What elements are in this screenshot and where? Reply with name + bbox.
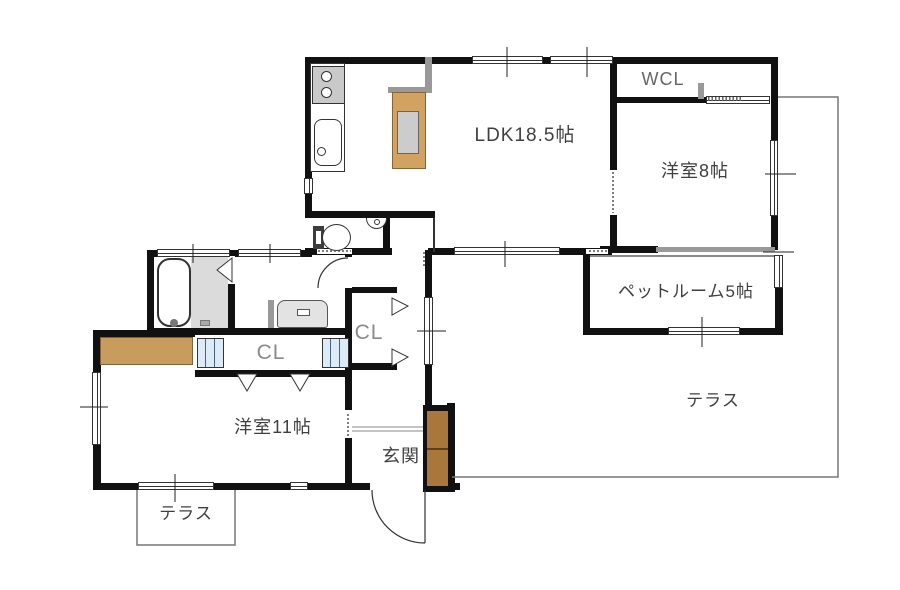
closet-door-panel-line xyxy=(214,339,215,367)
stove-burner xyxy=(321,87,332,98)
sliding-window xyxy=(454,247,560,255)
room-label-closet-hall: CL xyxy=(346,321,392,344)
kitchen-sink xyxy=(314,119,342,166)
wall-thin xyxy=(590,255,775,257)
room-label-wcl: WCL xyxy=(638,70,688,90)
wall xyxy=(583,253,590,335)
closet-counter xyxy=(100,337,193,365)
wall xyxy=(93,330,195,337)
window xyxy=(304,178,313,194)
window xyxy=(290,482,308,490)
wall-thin xyxy=(433,218,435,252)
toilet-bowl xyxy=(322,224,351,251)
wall xyxy=(610,57,617,170)
window xyxy=(770,140,778,216)
door-swing-arc xyxy=(372,490,425,543)
wcl-opening xyxy=(706,96,770,104)
room-label-west-room-11: 洋室11帖 xyxy=(220,418,326,438)
window xyxy=(138,482,214,490)
wall xyxy=(345,287,397,293)
room-label-ldk: LDK18.5帖 xyxy=(450,126,600,147)
stove-burner xyxy=(321,71,332,82)
window xyxy=(550,56,613,64)
closet-door-panel-line xyxy=(339,339,340,367)
vanity-sink xyxy=(297,309,310,316)
room-label-pet-room: ペットルーム5帖 xyxy=(597,283,775,302)
kitchen-partition xyxy=(425,57,432,93)
window xyxy=(157,249,230,257)
room-label-entrance: 玄関 xyxy=(372,447,430,467)
bathroom-floor xyxy=(191,257,228,328)
sliding-partition xyxy=(656,247,775,252)
closet-door-panel-line xyxy=(205,339,206,367)
shoe-cabinet-divider xyxy=(427,448,448,450)
room-label-terrace-left: テラス xyxy=(142,505,230,524)
wall xyxy=(147,250,154,335)
doorway xyxy=(610,170,617,215)
window xyxy=(668,327,740,335)
room-label-terrace-right: テラス xyxy=(667,392,759,411)
closet-door-blue xyxy=(197,338,224,368)
toilet-tank-line xyxy=(316,231,321,244)
doorway xyxy=(228,256,235,284)
bathtub xyxy=(157,258,191,327)
fold-door-arrow xyxy=(392,298,408,315)
doorway xyxy=(345,257,352,288)
room-label-west-room-8: 洋室8帖 xyxy=(645,162,745,182)
wall xyxy=(345,363,397,370)
basin-faucet xyxy=(374,219,380,225)
bath-drain xyxy=(200,320,210,326)
window xyxy=(92,372,101,445)
bath-tap xyxy=(170,319,178,327)
floor-plan: LDK18.5帖 WCL 洋室8帖 ペットルーム5帖 テラス CL CL 洋室1… xyxy=(0,0,900,590)
entrance-step-line xyxy=(352,427,423,431)
room-label-closet-main: CL xyxy=(245,341,297,364)
wall xyxy=(195,370,348,377)
window xyxy=(472,56,543,64)
closet-door-blue xyxy=(322,338,349,368)
vanity-partition xyxy=(268,300,274,328)
doorway xyxy=(345,410,352,438)
wall xyxy=(610,215,617,250)
wall xyxy=(610,97,708,103)
doorway xyxy=(586,249,608,254)
island-sink xyxy=(397,111,419,154)
door-swing-arc xyxy=(318,258,348,288)
sink-faucet xyxy=(317,147,326,156)
closet-door-panel-line xyxy=(330,339,331,367)
entrance-doorway xyxy=(370,483,425,490)
wall xyxy=(305,211,435,218)
wcl-partition xyxy=(698,83,704,99)
window xyxy=(774,255,783,288)
window xyxy=(238,249,301,257)
window xyxy=(424,297,433,365)
